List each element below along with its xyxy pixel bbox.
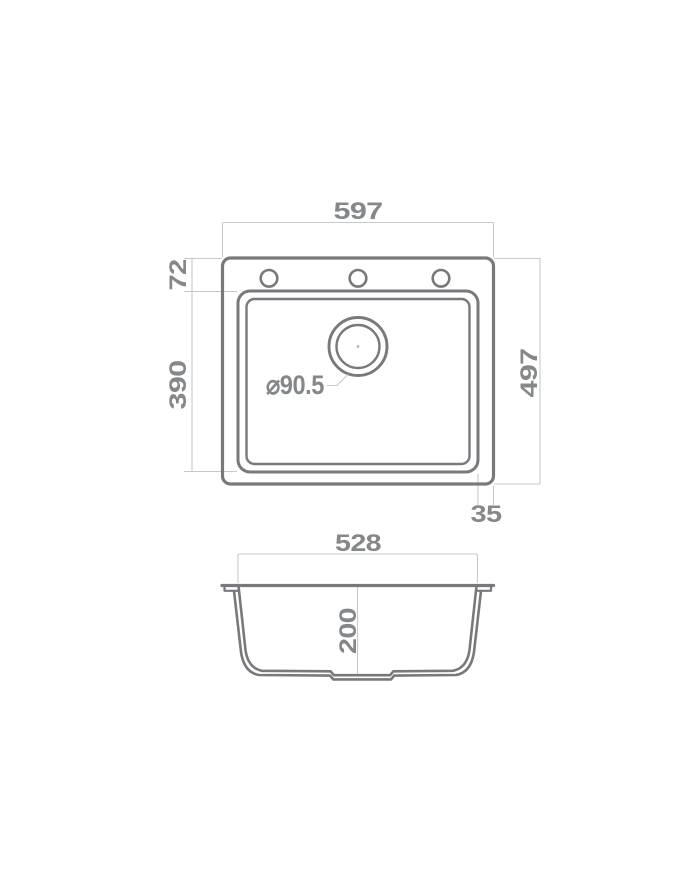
- dim-bowl-to-edge: 35: [471, 474, 502, 528]
- drain-diameter-callout: ⌀90.5: [266, 370, 348, 400]
- leader-line: [327, 375, 348, 386]
- dim-label-drain-diameter: ⌀90.5: [266, 370, 324, 400]
- faucet-hole-left: [261, 270, 278, 287]
- drain: [329, 318, 387, 376]
- top-view: 597 72 390 497 35: [165, 198, 543, 528]
- dim-label-bowl-height: 200: [335, 608, 362, 654]
- dim-label-bowl-width: 528: [335, 530, 381, 557]
- sink-technical-drawing: 597 72 390 497 35: [0, 0, 700, 869]
- dim-label-bowl-to-edge: 35: [471, 501, 502, 528]
- drain-center-mark: [357, 345, 360, 348]
- faucet-hole-center: [350, 270, 367, 287]
- section-view: 528 200: [222, 530, 494, 679]
- dim-overall-width: 597: [223, 198, 494, 257]
- dim-left-column: 72 390: [165, 258, 237, 472]
- dim-label-rim-to-bowl-top: 72: [165, 259, 192, 290]
- dim-bowl-width: 528: [238, 530, 478, 583]
- dim-bowl-height: 200: [335, 586, 362, 676]
- dim-overall-depth: 497: [494, 258, 543, 484]
- section-flange-left: [225, 587, 239, 591]
- dim-label-overall-width: 597: [334, 198, 383, 225]
- faucet-hole-right: [433, 270, 450, 287]
- drawing-canvas: 597 72 390 497 35: [0, 0, 700, 869]
- dim-label-bowl-depth: 390: [165, 360, 192, 409]
- dim-label-overall-depth: 497: [516, 348, 543, 397]
- section-flange-right: [478, 587, 492, 591]
